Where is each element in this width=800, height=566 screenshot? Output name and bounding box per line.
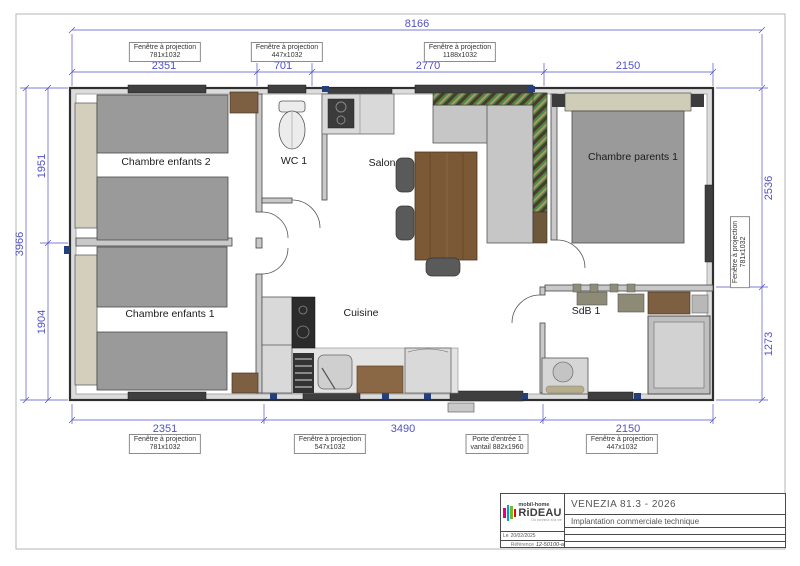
dim-overall-width: 8166 [405,18,429,30]
room-label-salon: Salon [369,157,396,169]
dim-left-1: 1951 [36,154,48,178]
window-label-line1: Fenêtre à projection [429,44,491,52]
shower-tray [654,322,704,388]
drawing-subtitle: Implantation commerciale technique [565,515,786,528]
oven [292,297,315,348]
date-value: 20/02/2025 [511,533,536,539]
sofa-seat-right [487,105,533,243]
reference-value: 12-50100-a [536,542,564,548]
vanity [648,292,690,314]
window-label-line2: 781x1032 [134,444,196,452]
dim-bottom-2: 3490 [391,423,415,435]
window-label-right: Fenêtre à projection 781x1032 [730,216,750,288]
window-top-3 [415,85,533,93]
window-label-line1: Fenêtre à projection [591,436,653,444]
window-label-bottom-1: Fenêtre à projection 781x1032 [129,434,201,454]
window-label-top-1: Fenêtre à projection 781x1032 [129,42,201,62]
bed [97,177,228,240]
logo-text: mobil-home RiDEAU Du bonheur à la vie [518,503,561,523]
sofa-armrest [533,212,547,243]
window-label-line1: Fenêtre à projection [299,436,361,444]
wall-wc-bottom [262,198,292,203]
window-bottom-3 [588,392,633,400]
date-label: Le [503,533,509,539]
bed [97,332,227,390]
window-label-bottom-3: Fenêtre à projection 447x1032 [586,434,658,454]
dim-right-1: 2536 [763,176,775,200]
window-label-line2: 781x1032 [740,221,748,283]
title-block-empty-row [565,542,786,548]
cabinet [232,373,258,393]
dishwasher [405,348,451,393]
title-block-empty-row [565,528,786,535]
chair [396,206,414,240]
drawing-sheet: 8166 2351 701 2770 2150 3966 1951 1904 2… [0,0,800,566]
window-label-line1: Fenêtre à projection [732,221,740,283]
double-bed [572,111,684,243]
dim-right-2: 1273 [763,332,775,356]
chair [426,258,460,276]
room-label-sdb: SdB 1 [572,305,601,317]
room-label-wc: WC 1 [281,155,307,167]
nightstand [691,94,704,107]
chair [396,158,414,192]
window-label-line2: 781x1032 [134,52,196,60]
sink [318,355,352,389]
window-label-line2: 447x1032 [591,444,653,452]
dining-table [415,152,477,260]
reference-label: Référence [511,542,534,548]
wall-sdb-left-top [540,287,545,295]
door-label-bottom: Porte d'entrée 1 vantail 882x1960 [466,434,529,454]
dim-overall-depth: 3966 [14,232,26,256]
dim-left-2: 1904 [36,310,48,334]
logo-bars-icon [503,505,516,521]
window-label-line1: Fenêtre à projection [256,44,318,52]
bed [97,95,228,153]
window-label-line2: 1188x1032 [429,52,491,60]
wall-cabinet [577,292,607,305]
wall-salon-parents [551,94,557,240]
wall-stub [256,238,262,248]
headboard [75,103,97,228]
door-label-line1: Porte d'entrée 1 [471,436,524,444]
bed [97,247,227,307]
window-label-line1: Fenêtre à projection [134,436,196,444]
room-label-cuisine: Cuisine [343,307,378,319]
company-logo: mobil-home RiDEAU Du bonheur à la vie [501,494,564,532]
headboard [565,93,691,111]
window-label-bottom-2: Fenêtre à projection 547x1032 [294,434,366,454]
window-top-1 [128,85,206,93]
room-label-parents: Chambre parents 1 [588,151,678,163]
door-label-line2: vantail 882x1960 [471,444,524,452]
floorplan-drawing: 8166 2351 701 2770 2150 3966 1951 1904 2… [0,0,800,566]
headboard [75,255,97,385]
window-bottom-1 [128,392,206,400]
window-label-top-2: Fenêtre à projection 447x1032 [251,42,323,62]
room-label-bedroom2: Chambre enfants 2 [121,156,210,168]
title-block-empty-row [565,535,786,542]
bath-mat [546,386,584,393]
parents-furniture [552,93,704,243]
window-label-line2: 547x1032 [299,444,361,452]
wall-cabinet [618,294,644,312]
window-label-line1: Fenêtre à projection [134,44,196,52]
wc-fixtures [279,101,305,149]
drawing-date: Le 20/02/2025 [501,532,564,541]
entrance-step [448,403,474,412]
nightstand [552,94,565,107]
dim-top-4: 2150 [616,60,640,72]
kitchen-top [322,94,394,134]
entrance-door [450,391,523,401]
toilet-tank [279,101,305,112]
cabinet [230,92,258,113]
sofa-back-right [533,93,547,212]
window-label-top-3: Fenêtre à projection 1188x1032 [424,42,496,62]
sofa-back-top [433,93,547,105]
window-top-2 [268,85,306,93]
logo-tagline: Du bonheur à la vie [518,519,561,523]
room-label-bedroom1: Chambre enfants 1 [125,308,214,320]
washbasin [692,295,708,313]
drawing-reference: Référence 12-50100-a [501,541,566,549]
drawing-title: VENEZIA 81.3 - 2026 [565,494,786,515]
window-label-line2: 447x1032 [256,52,318,60]
title-block: VENEZIA 81.3 - 2026 Implantation commerc… [500,493,786,548]
window-right [705,185,713,262]
cabinet [357,366,403,393]
